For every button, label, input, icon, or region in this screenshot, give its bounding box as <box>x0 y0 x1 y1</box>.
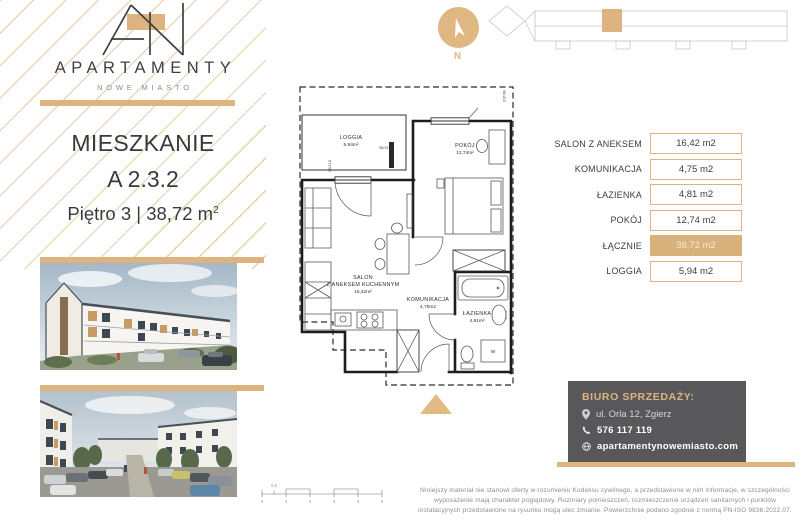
row-value: 5,94 m2 <box>650 261 742 282</box>
table-row: POKÓJ 12,74 m2 <box>548 210 742 231</box>
scale-bar: 0,5 0 1 2 3 4 5 <box>258 478 393 506</box>
room-label-loggia: LOGGIA <box>340 135 363 141</box>
row-value: 4,81 m2 <box>650 184 742 205</box>
table-row: KOMUNIKACJA 4,75 m2 <box>548 159 742 180</box>
row-label: KOMUNIKACJA <box>548 164 650 174</box>
building-site-plan <box>487 3 795 55</box>
row-label: POKÓJ <box>548 215 650 225</box>
room-area-pokoj: 12,74m² <box>456 150 474 156</box>
table-row: SALON Z ANEKSEM 16,42 m2 <box>548 133 742 154</box>
brand-monogram-icon <box>97 2 189 58</box>
room-area-table: SALON Z ANEKSEM 16,42 m2 KOMUNIKACJA 4,7… <box>548 133 742 286</box>
superscript-2: 2 <box>213 205 219 216</box>
scale-tick: 3 <box>333 499 336 504</box>
row-label: ŁĄCZNIE <box>548 241 650 251</box>
gold-bar-contact <box>557 462 795 467</box>
dimension-label-3: 90/210 <box>328 160 332 172</box>
phone-number: 576 117 119 <box>597 425 652 436</box>
brand-name: APARTAMENTY <box>40 59 246 78</box>
scale-tick: 0 <box>261 499 264 504</box>
compass: N <box>437 7 479 62</box>
highlighted-unit-marker <box>602 9 622 32</box>
unit-number: A 2.3.2 <box>40 166 246 193</box>
website-row: apartamentynowemiasto.com <box>582 441 738 452</box>
row-value-total: 38,72 m2 <box>650 235 742 256</box>
row-value: 4,75 m2 <box>650 159 742 180</box>
sales-office-panel: BIURO SPRZEDAŻY: ul. Orla 12, Zgierz 576… <box>568 381 746 462</box>
phone-row: 576 117 119 <box>582 425 738 436</box>
scale-tick: 2 <box>309 499 312 504</box>
address-text: ul. Orla 12, Zgierz <box>596 409 672 420</box>
scale-tick: 4 <box>357 499 360 504</box>
dimension-label-2: 90/210 <box>379 146 391 150</box>
brand-logo-block: APARTAMENTY NOWE MIASTO <box>40 2 246 92</box>
room-label-pokoj: POKÓJ <box>455 142 475 149</box>
row-label: ŁAZIENKA <box>548 190 650 200</box>
room-label-lazienka: ŁAZIENKA <box>463 311 492 317</box>
room-label-salon-2: Z ANEKSEM KUCHENNYM <box>327 282 400 288</box>
washer-label: W <box>491 349 496 355</box>
apartment-floor-plan: LOGGIA 5,94m² POKÓJ 12,74m² SALON Z ANEK… <box>293 82 528 400</box>
compass-north-label: N <box>437 51 479 62</box>
gold-divider-bar <box>40 100 235 106</box>
room-label-komunikacja: KOMUNIKACJA <box>407 297 449 303</box>
row-value: 12,74 m2 <box>650 210 742 231</box>
listing-heading: MIESZKANIE A 2.3.2 Piętro 3 | 38,72 m2 <box>40 130 246 225</box>
address-row: ul. Orla 12, Zgierz <box>582 409 738 420</box>
listing-title: MIESZKANIE <box>40 130 246 157</box>
room-label-salon: SALON <box>353 275 373 281</box>
legal-disclaimer: Niniejszy materiał nie stanowi oferty w … <box>413 486 797 517</box>
location-pin-icon <box>582 409 590 420</box>
table-row-total: ŁĄCZNIE 38,72 m2 <box>548 235 742 256</box>
room-area-lazienka: 4,81m² <box>470 318 485 324</box>
room-area-salon: 16,42m² <box>354 289 372 295</box>
scale-half-label: 0,5 <box>271 483 277 488</box>
sales-office-heading: BIURO SPRZEDAŻY: <box>582 391 738 403</box>
row-label: SALON Z ANEKSEM <box>548 139 650 149</box>
table-row: LOGGIA 5,94 m2 <box>548 261 742 282</box>
room-area-loggia: 5,94m² <box>344 142 359 148</box>
room-area-komunikacja: 4,75m2 <box>420 304 436 310</box>
phone-icon <box>582 426 591 435</box>
dimension-label-1: 90/210 <box>502 90 506 102</box>
table-row: ŁAZIENKA 4,81 m2 <box>548 184 742 205</box>
row-value: 16,42 m2 <box>650 133 742 154</box>
floor-and-area: Piętro 3 | 38,72 m2 <box>40 203 246 225</box>
globe-icon <box>582 442 591 451</box>
render-photo-courtyard-parking <box>40 391 237 497</box>
render-photo-building-exterior <box>40 263 237 370</box>
north-arrow-icon <box>447 15 469 41</box>
scale-tick: 1 <box>285 499 288 504</box>
website-url: apartamentynowemiasto.com <box>597 441 738 452</box>
scale-tick: 5 <box>381 499 384 504</box>
brand-tagline: NOWE MIASTO <box>40 83 246 92</box>
compass-circle <box>438 7 479 48</box>
entrance-marker-triangle <box>420 394 452 414</box>
row-label: LOGGIA <box>548 266 650 276</box>
